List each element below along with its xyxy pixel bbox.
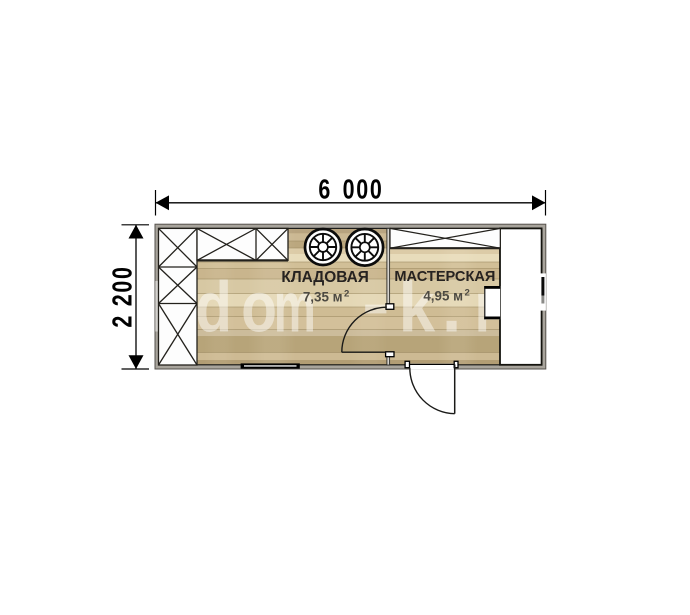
svg-text:000: 000 bbox=[343, 175, 384, 205]
svg-text:4,95 м: 4,95 м bbox=[423, 288, 463, 303]
svg-text:6: 6 bbox=[318, 175, 330, 205]
svg-text:2: 2 bbox=[344, 288, 349, 299]
svg-text:КЛАДОВАЯ: КЛАДОВАЯ bbox=[281, 269, 368, 286]
svg-text:МАСТЕРСКАЯ: МАСТЕРСКАЯ bbox=[394, 269, 495, 285]
svg-text:7,35 м: 7,35 м bbox=[303, 289, 343, 304]
svg-text:d: d bbox=[195, 267, 232, 347]
svg-text:2: 2 bbox=[465, 288, 470, 299]
svg-text:o: o bbox=[241, 267, 277, 347]
svg-text:2 200: 2 200 bbox=[108, 265, 138, 327]
